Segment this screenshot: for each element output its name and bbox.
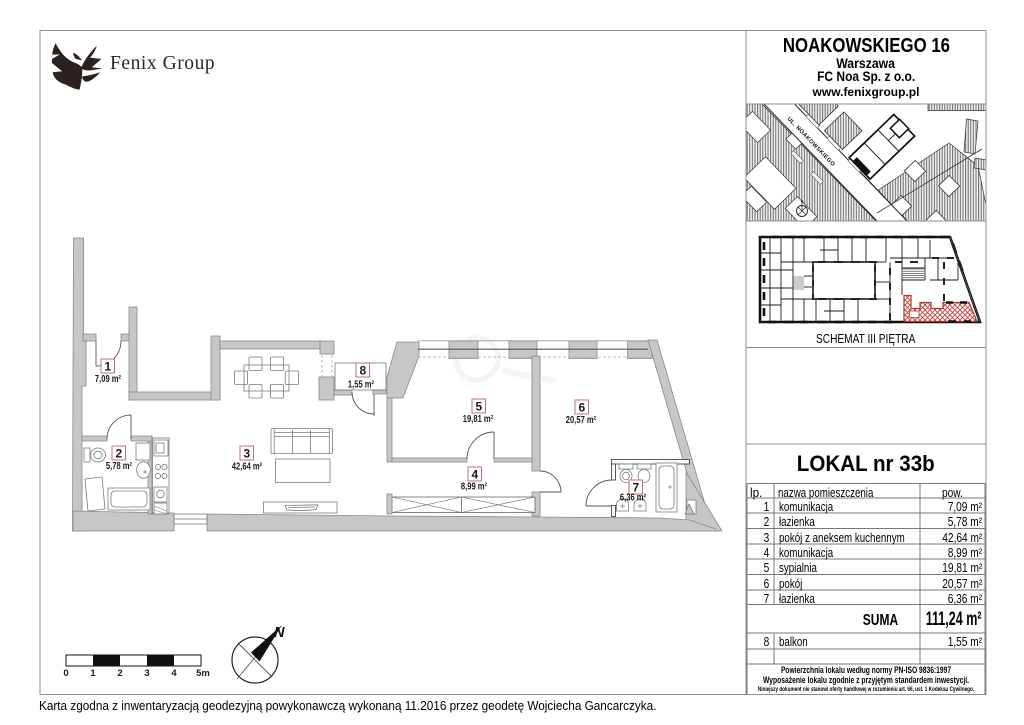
svg-text:N: N [274,625,285,641]
svg-text:8: 8 [359,364,366,378]
svg-text:1: 1 [90,668,96,679]
svg-text:3: 3 [243,447,250,461]
svg-text:3: 3 [144,668,149,679]
svg-text:4: 4 [471,468,478,482]
svg-text:5: 5 [475,400,482,414]
svg-text:0: 0 [63,668,68,679]
svg-text:1,55 m²: 1,55 m² [348,378,374,389]
svg-text:2: 2 [117,668,122,679]
svg-text:42,64 m²: 42,64 m² [232,460,262,471]
svg-text:5m: 5m [196,668,210,679]
svg-text:6: 6 [578,401,585,415]
svg-text:8,99 m²: 8,99 m² [461,480,487,491]
svg-text:4: 4 [171,668,177,679]
svg-text:6,36 m²: 6,36 m² [620,491,646,502]
svg-text:7,09 m²: 7,09 m² [95,373,121,384]
svg-text:5,78 m²: 5,78 m² [106,460,132,471]
svg-text:20,57 m²: 20,57 m² [566,414,596,425]
svg-text:19,81 m²: 19,81 m² [463,413,493,424]
svg-text:1: 1 [104,360,111,374]
svg-text:2: 2 [115,447,122,461]
